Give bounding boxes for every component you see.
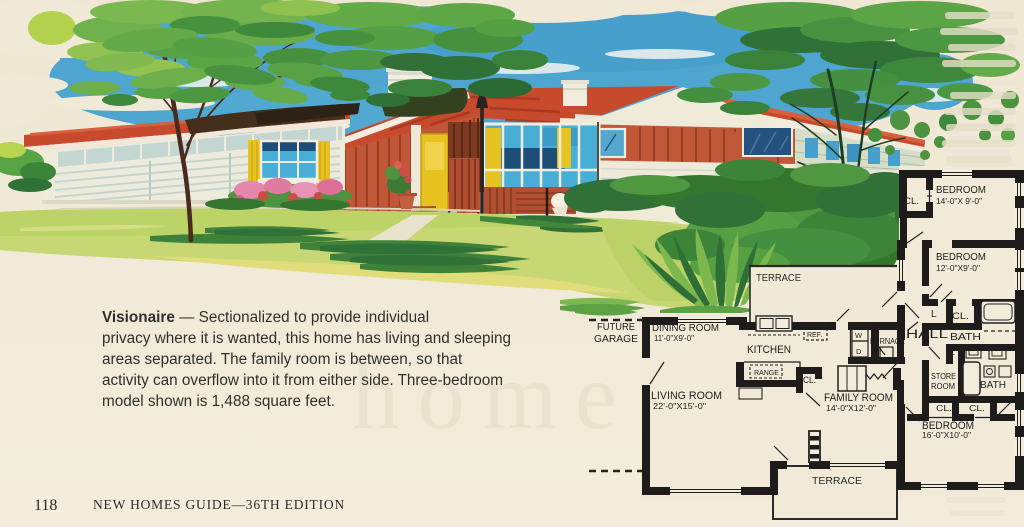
svg-text:STORE: STORE xyxy=(931,372,956,381)
svg-text:L: L xyxy=(931,309,937,320)
svg-text:12'-0"X9'-0": 12'-0"X9'-0" xyxy=(936,264,980,273)
svg-text:16'-0"X10'-0": 16'-0"X10'-0" xyxy=(922,431,971,440)
svg-text:BEDROOM: BEDROOM xyxy=(936,184,986,196)
svg-text:HALL: HALL xyxy=(906,329,949,341)
svg-text:Visionaire — Sectionalized to: Visionaire — Sectionalized to provide in… xyxy=(102,309,429,326)
svg-text:11'-0"X9'-0": 11'-0"X9'-0" xyxy=(654,334,694,343)
svg-text:CL.: CL. xyxy=(952,311,969,322)
svg-text:KITCHEN: KITCHEN xyxy=(747,344,791,356)
svg-text:118: 118 xyxy=(34,497,57,514)
svg-text:model shown is 1,488 square fe: model shown is 1,488 square feet. xyxy=(102,393,335,410)
svg-text:activity can overflow into it: activity can overflow into it from eithe… xyxy=(102,372,503,389)
svg-text:D: D xyxy=(856,347,862,356)
svg-text:T: T xyxy=(950,352,955,361)
svg-text:14'-0"X 9'-0": 14'-0"X 9'-0" xyxy=(936,197,982,206)
svg-text:areas separated. The family ro: areas separated. The family room is betw… xyxy=(102,351,463,368)
svg-text:DINING ROOM: DINING ROOM xyxy=(652,322,719,334)
svg-text:TERRACE: TERRACE xyxy=(812,475,862,487)
svg-text:BATH: BATH xyxy=(980,379,1006,391)
svg-text:BEDROOM: BEDROOM xyxy=(936,251,986,263)
svg-text:CL.: CL. xyxy=(936,403,952,413)
svg-text:BATH: BATH xyxy=(950,331,981,343)
svg-text:TERRACE: TERRACE xyxy=(756,273,801,284)
svg-text:CL.: CL. xyxy=(904,196,919,206)
svg-text:FURNACE: FURNACE xyxy=(870,336,905,346)
svg-text:privacy where it is wanted, th: privacy where it is wanted, this home ha… xyxy=(102,330,511,347)
svg-text:FUTURE: FUTURE xyxy=(597,321,635,333)
svg-text:NEW HOMES GUIDE—36TH EDITION: NEW HOMES GUIDE—36TH EDITION xyxy=(93,497,345,512)
svg-text:ROOM: ROOM xyxy=(931,382,955,391)
svg-text:14'-0"X12'-0": 14'-0"X12'-0" xyxy=(826,403,876,413)
svg-text:RANGE: RANGE xyxy=(754,370,779,377)
svg-text:CL.: CL. xyxy=(803,375,816,385)
svg-text:REF.: REF. xyxy=(807,332,822,339)
svg-text:W: W xyxy=(855,331,863,340)
svg-text:22'-0"X15'-0": 22'-0"X15'-0" xyxy=(653,401,706,411)
svg-text:CL.: CL. xyxy=(969,403,985,413)
